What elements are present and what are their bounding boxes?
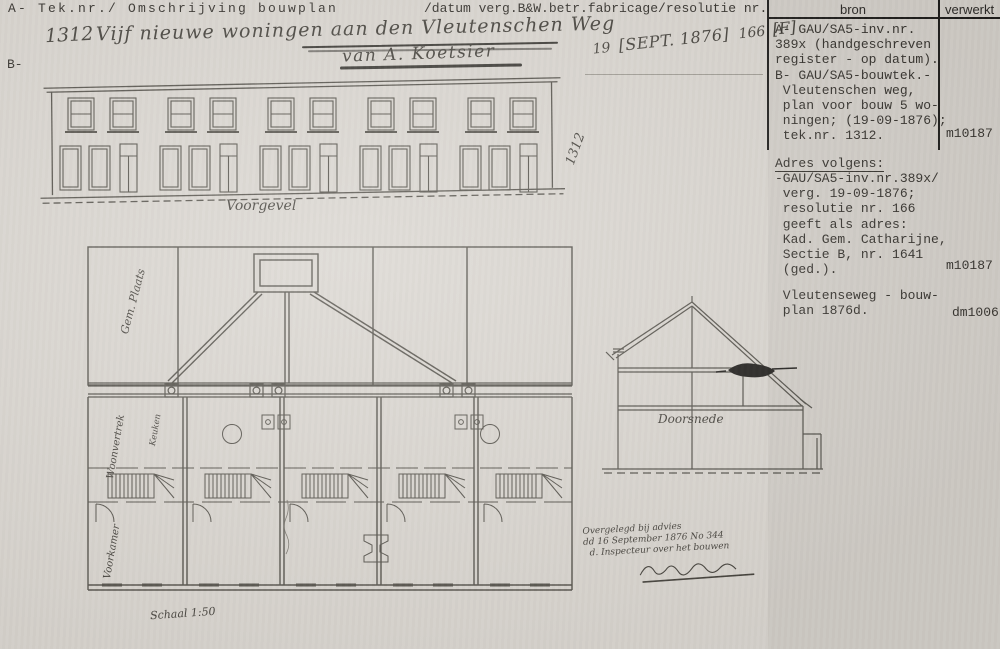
verwerkt-entry-1: m10187 (946, 126, 993, 141)
signature-flourish (635, 553, 766, 588)
handwritten-teknr: 1312 (44, 23, 93, 48)
illegible-annotation (284, 500, 289, 554)
bron-entry-2: -GAU/SA5-inv.nr.389x/ verg. 19-09-1876; … (775, 171, 947, 277)
plan-yard (88, 247, 572, 385)
bron-entry-1: A- GAU/SA5-inv.nr. 389x (handgeschreven … (775, 22, 947, 144)
column-header-bron: bron (768, 2, 938, 17)
verwerkt-entry-2: m10187 (946, 258, 993, 273)
panel-header-rule (767, 17, 1000, 19)
rotated-teknr: 1312 (563, 131, 588, 167)
header-left: A- Tek.nr./ Omschrijving bouwplan (8, 1, 338, 16)
sheet-edge-line (585, 74, 763, 75)
facade-caption: Voorgevel (226, 198, 296, 214)
column-header-verwerkt: verwerkt (945, 2, 994, 17)
facade-elevation-drawing (40, 72, 565, 207)
bron-entry-2-heading: Adres volgens: (775, 156, 884, 172)
panel-left-border (767, 0, 769, 150)
date-day: 19 (592, 40, 611, 58)
section-caption: Doorsnede (658, 412, 724, 426)
archive-card: A- Tek.nr./ Omschrijving bouwplan /datum… (0, 0, 1000, 649)
verwerkt-entry-3: dm1006 (952, 305, 999, 320)
section-marker-b: B- (7, 57, 23, 72)
plan-interior (88, 415, 572, 585)
bron-entry-3: Vleutenseweg - bouw- plan 1876d. (775, 288, 939, 318)
resolutie-nr: 166 (738, 24, 766, 43)
handwritten-title: Vijf nieuwe woningen aan den Vleutensche… (96, 13, 616, 46)
date-stamp: [SEPT. 1876] (618, 24, 730, 55)
handwritten-builder: van A. Koetsier (342, 41, 496, 66)
approval-note: Overgelegd bij advies dd 16 September 18… (582, 519, 729, 560)
